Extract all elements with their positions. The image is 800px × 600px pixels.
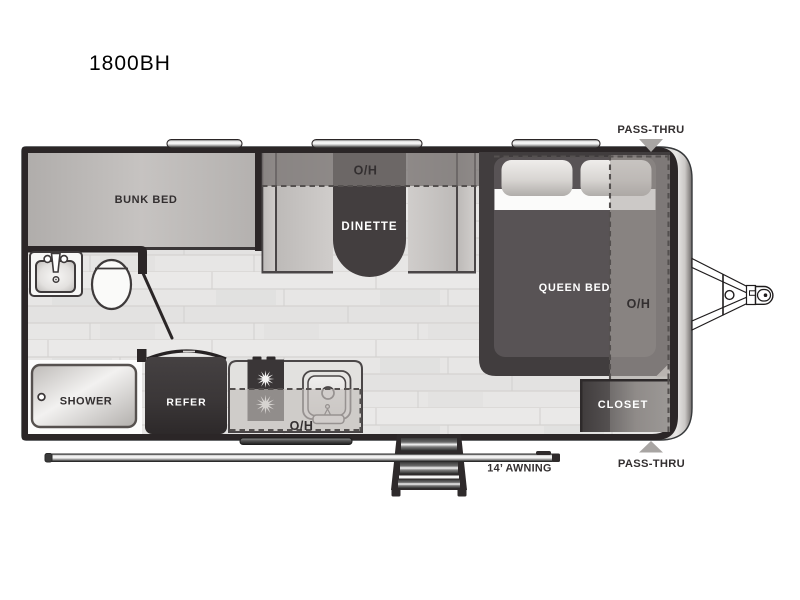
svg-text:DINETTE: DINETTE [341,221,397,233]
svg-text:O/H: O/H [354,164,378,178]
svg-text:SHOWER: SHOWER [60,396,113,408]
svg-text:PASS-THRU: PASS-THRU [617,124,684,136]
svg-text:PASS-THRU: PASS-THRU [618,458,685,470]
svg-text:CLOSET: CLOSET [598,399,649,411]
svg-text:BUNK BED: BUNK BED [115,194,178,206]
svg-text:O/H: O/H [290,419,314,433]
svg-text:REFER: REFER [166,398,206,409]
svg-text:QUEEN BED: QUEEN BED [539,282,610,294]
svg-text:O/H: O/H [627,297,651,311]
svg-text:14’ AWNING: 14’ AWNING [487,463,551,475]
svg-text:1800BH: 1800BH [89,52,171,75]
